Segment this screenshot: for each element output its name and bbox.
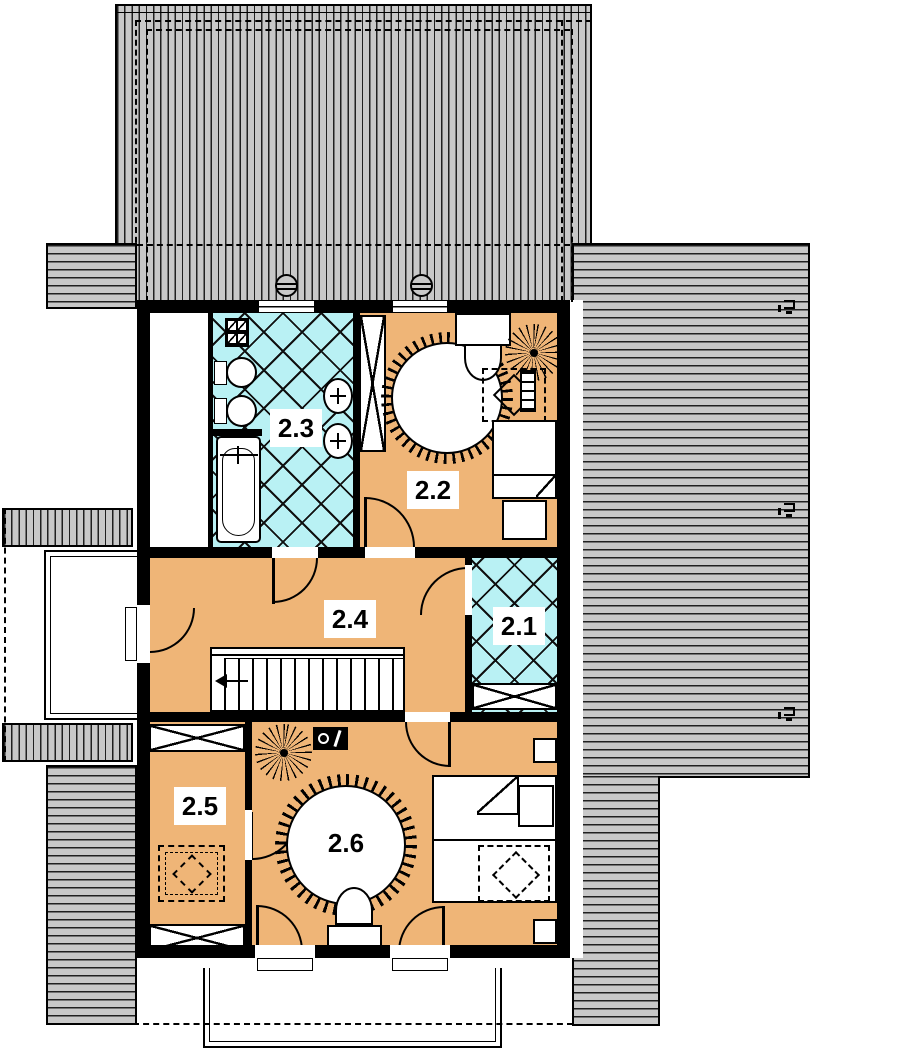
tv-slash: [333, 730, 341, 747]
blanket-fold: [477, 777, 519, 815]
plant-center: [530, 349, 538, 357]
tv-icon: [313, 727, 348, 750]
blanket-fold: [536, 476, 555, 497]
plant-center: [280, 749, 288, 757]
room-2-5-floor: [150, 722, 245, 945]
room-2-1-number: 2.1: [501, 611, 537, 642]
room-2-5-label: 2.5: [174, 787, 226, 825]
desk-icon: [455, 313, 511, 346]
marker-bracket: [784, 503, 795, 512]
marker-tick: [778, 712, 781, 719]
room-2-1-label: 2.1: [493, 607, 545, 645]
roof-right-wide: [572, 243, 810, 778]
wall-exterior-top: [137, 300, 570, 313]
wall-bathtub-alcove: [213, 429, 262, 436]
room-2-3-label: 2.3: [270, 409, 322, 447]
door-opening-2-5-2-6: [245, 810, 252, 860]
door-opening-balcony-2: [390, 945, 450, 958]
door-sill: [257, 958, 313, 971]
bathtub-icon: [216, 436, 261, 543]
marker-tick: [786, 311, 792, 314]
roof-eave-dash-left-2: [146, 29, 148, 302]
roof-eave-dash-left-1: [135, 20, 137, 302]
washbasin-icon: [323, 378, 353, 414]
door-opening-balcony-left: [137, 605, 150, 663]
marker-bracket: [784, 707, 795, 716]
wall-interior-h1: [137, 547, 570, 558]
roof-top-ridge-line: [117, 12, 590, 13]
roof-vent-icon: [275, 274, 298, 297]
pillow-icon: [502, 500, 547, 540]
wall-exterior-right: [557, 300, 570, 958]
tv-circle: [318, 733, 329, 744]
toilet-icon: [226, 395, 257, 427]
roof-strip-left-top: [2, 508, 133, 547]
skylight-table-icon: [158, 845, 225, 902]
outline-dash-left: [4, 508, 6, 762]
stair-treads: [224, 658, 403, 710]
door-opening-2-2: [365, 547, 415, 558]
skylight-table-icon: [482, 368, 546, 422]
wall-exterior-bottom: [137, 945, 570, 958]
tap-cross: [337, 388, 339, 404]
door-opening-2-3: [272, 547, 318, 558]
washing-machine-icon: [225, 318, 249, 347]
room-2-4-label: 2.4: [324, 600, 376, 638]
roof-junction-dash: [137, 244, 570, 246]
roof-window-marker-icon: [778, 300, 798, 314]
outline-dash-bottom: [133, 1023, 573, 1025]
wardrobe-icon: [149, 724, 245, 752]
faucet-icon: [237, 446, 239, 464]
roof-right-narrow: [572, 776, 660, 1026]
stair-handrail: [212, 654, 403, 656]
room-2-3-number: 2.3: [278, 413, 314, 444]
wardrobe-icon: [472, 683, 557, 710]
marker-tick: [786, 718, 792, 721]
balcony-left: [44, 550, 137, 720]
marker-bracket: [784, 300, 795, 309]
roof-vent-icon: [410, 274, 433, 297]
washer-cell: [238, 334, 246, 343]
door-opening-balcony-1: [255, 945, 315, 958]
marker-tick: [786, 514, 792, 517]
washbasin-icon: [323, 423, 353, 459]
bed-divider: [434, 839, 555, 841]
attic-void: [150, 313, 208, 547]
nightstand-icon: [533, 738, 557, 763]
door-opening-2-6: [405, 712, 450, 722]
balcony-bottom: [203, 968, 502, 1048]
floor-plan: 2.1 2.2 2.3 2.4 2.5 2.6: [0, 0, 900, 1056]
room-2-6-number: 2.6: [328, 828, 364, 859]
roof-window-marker-icon: [778, 707, 798, 721]
roof-wing-bottom-left: [46, 765, 137, 1025]
bed-icon: [492, 420, 557, 499]
roof-top-main: [115, 4, 592, 302]
shelf-icon: [520, 370, 536, 412]
balcony-left-railing: [50, 556, 137, 714]
pillow-icon: [518, 785, 554, 827]
faucet-icon: [220, 454, 258, 456]
door-sill: [392, 958, 448, 971]
washer-cell: [238, 321, 246, 330]
plant-icon: [255, 724, 312, 781]
tap-cross: [337, 433, 339, 449]
toilet-icon: [226, 357, 257, 388]
roof-strip-left-bottom: [2, 723, 133, 762]
marker-tick: [778, 508, 781, 515]
table-diamond: [492, 851, 540, 899]
wall-interior-h2: [137, 712, 570, 722]
stair-arrow-line: [226, 680, 248, 682]
roof-eave-dash-top-1: [135, 20, 592, 22]
balcony-bottom-railing: [209, 968, 496, 1042]
roof-window-marker-icon: [778, 503, 798, 517]
roof-wing-top-left: [46, 243, 137, 309]
room-2-5-number: 2.5: [182, 791, 218, 822]
roof-eave-dash-top-2: [146, 29, 570, 31]
room-2-6-label: 2.6: [320, 824, 372, 862]
door-opening-2-1: [465, 565, 472, 615]
door-sill: [125, 607, 137, 661]
marker-tick: [778, 305, 781, 312]
roof-eave-dash-right-1: [561, 20, 563, 302]
room-2-2-number: 2.2: [415, 475, 451, 506]
room-2-4-number: 2.4: [332, 604, 368, 635]
nightstand-icon: [533, 919, 557, 944]
wall-interior-v-23-22: [353, 313, 360, 547]
staircase: [210, 647, 405, 712]
window-top-1: [258, 300, 315, 313]
room-2-2-label: 2.2: [407, 471, 459, 509]
washer-cell: [228, 321, 236, 330]
skylight-table-icon: [478, 845, 550, 902]
window-top-2: [392, 300, 448, 313]
roof-eave-dash-right-2: [571, 29, 573, 302]
washer-cell: [228, 334, 236, 343]
